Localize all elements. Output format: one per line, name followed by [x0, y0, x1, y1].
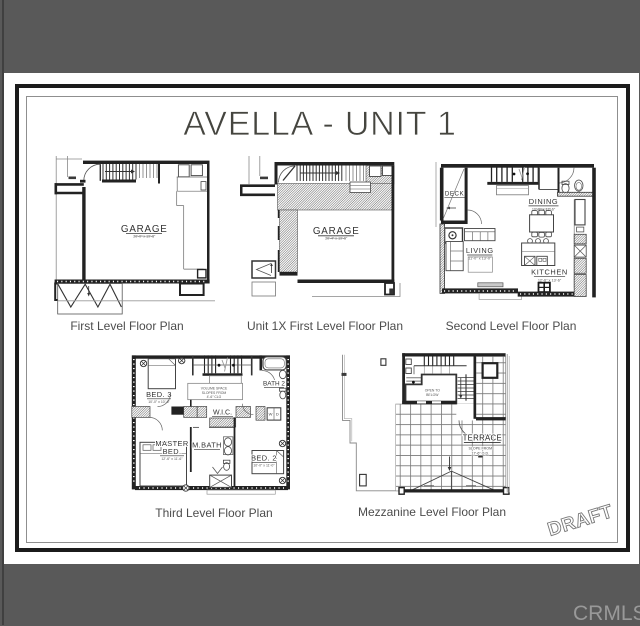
svg-text:M.BATH: M.BATH — [192, 441, 222, 450]
svg-text:SLOPE FROM: SLOPE FROM — [469, 447, 493, 451]
svg-text:W.I.C.: W.I.C. — [213, 410, 232, 417]
svg-text:W: W — [269, 412, 273, 417]
svg-text:4'-6" CLG: 4'-6" CLG — [207, 395, 222, 399]
svg-text:KITCHEN: KITCHEN — [531, 268, 568, 277]
svg-text:DINING: DINING — [529, 197, 558, 206]
svg-text:D: D — [276, 412, 279, 417]
svg-text:20'-4" x 19'-6": 20'-4" x 19'-6" — [325, 237, 348, 241]
svg-text:OPEN TO: OPEN TO — [425, 389, 440, 393]
svg-text:LIVING: LIVING — [466, 246, 494, 255]
svg-text:BED. 3: BED. 3 — [146, 390, 172, 399]
svg-text:GARAGE: GARAGE — [121, 224, 168, 235]
svg-text:17'-6" O.D.: 17'-6" O.D. — [472, 451, 490, 455]
svg-text:DECK: DECK — [445, 191, 465, 198]
svg-text:BELOW: BELOW — [426, 393, 439, 397]
svg-text:BATH 2: BATH 2 — [263, 381, 285, 388]
svg-text:BED. 2: BED. 2 — [251, 454, 277, 463]
svg-text:10'-0" x 11'-0": 10'-0" x 11'-0" — [253, 464, 275, 468]
svg-text:BED.: BED. — [163, 447, 182, 456]
svg-text:TERRACE: TERRACE — [463, 434, 502, 443]
svg-text:12'-6" x 13'-6": 12'-6" x 13'-6" — [538, 278, 562, 282]
svg-text:20'-0" x 19'-6": 20'-0" x 19'-6" — [133, 235, 156, 239]
svg-text:GARAGE: GARAGE — [313, 226, 360, 237]
svg-text:12'-6" x 11'-6": 12'-6" x 11'-6" — [161, 457, 183, 461]
